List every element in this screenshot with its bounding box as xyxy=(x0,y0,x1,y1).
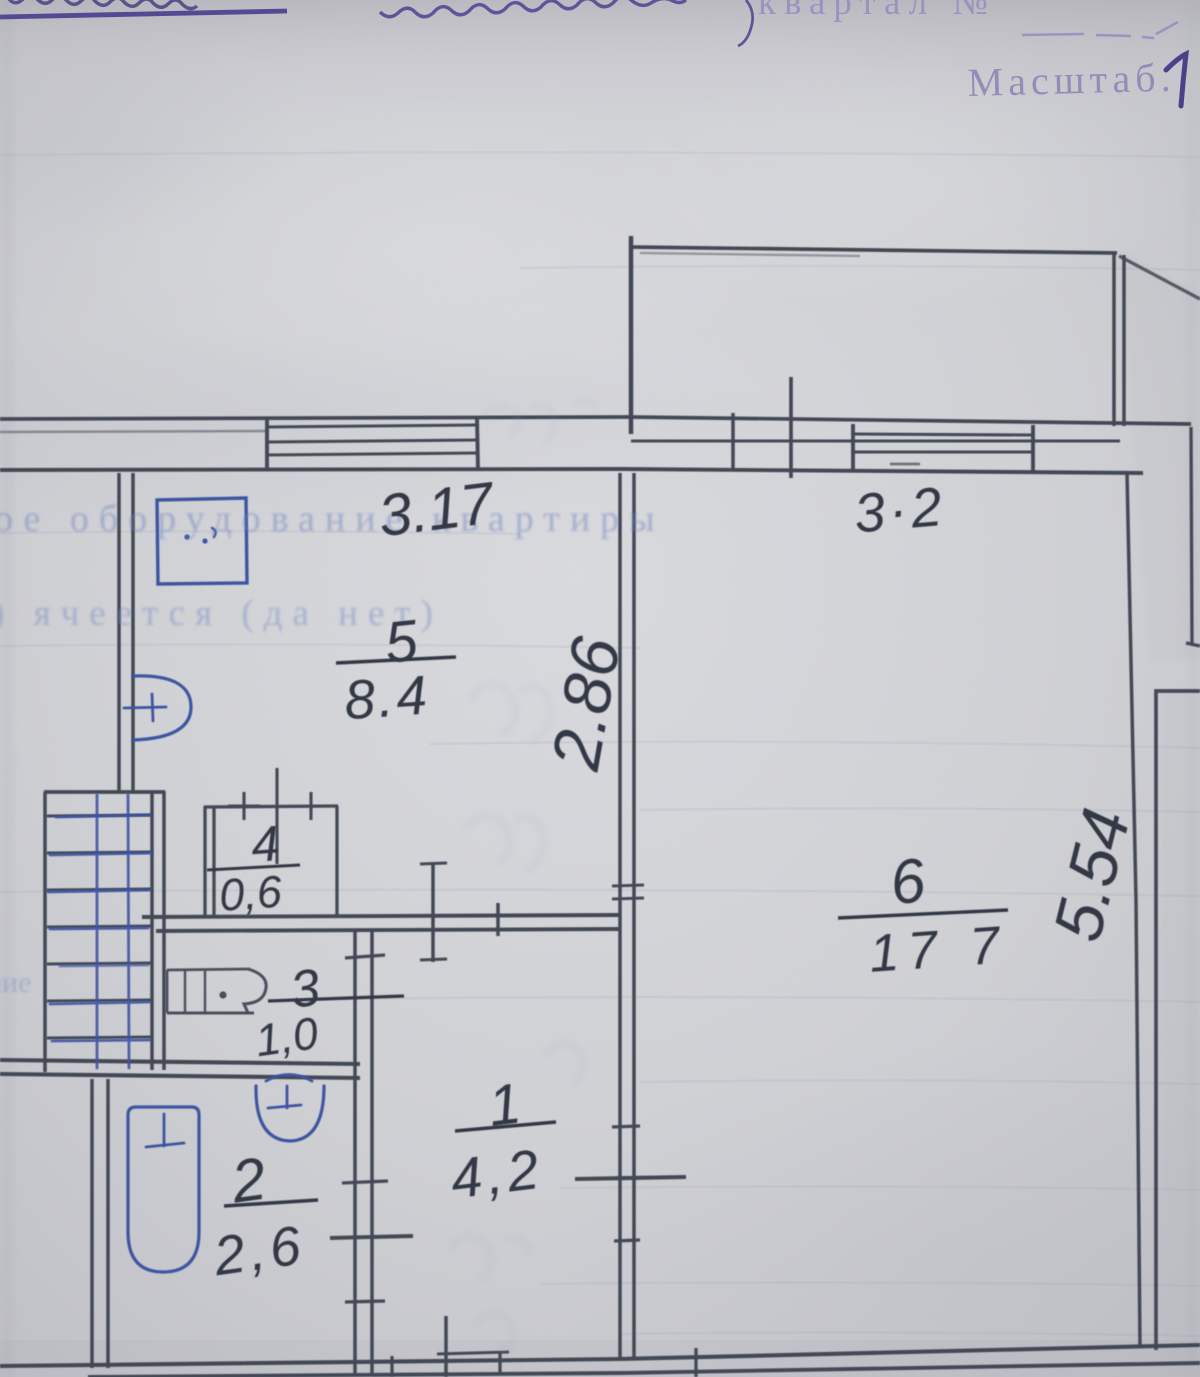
svg-text:8.4: 8.4 xyxy=(342,663,432,731)
svg-text:1,0: 1,0 xyxy=(252,1007,321,1066)
svg-text:ое оборудование квартиры: ое оборудование квартиры xyxy=(0,498,665,540)
svg-text:0,6: 0,6 xyxy=(217,865,284,920)
svg-text:квартал №: квартал № xyxy=(758,0,996,23)
svg-text:17 7: 17 7 xyxy=(867,915,1010,984)
svg-text:3·2: 3·2 xyxy=(852,475,949,545)
svg-text:4,2: 4,2 xyxy=(447,1137,547,1211)
svg-text:) ячеется (да нет): ) ячеется (да нет) xyxy=(0,593,443,634)
svg-text:2,6: 2,6 xyxy=(209,1213,309,1287)
svg-text:4: 4 xyxy=(249,815,281,873)
svg-text:Масштаб.: Масштаб. xyxy=(967,55,1176,105)
svg-text:ние: ние xyxy=(0,966,31,999)
